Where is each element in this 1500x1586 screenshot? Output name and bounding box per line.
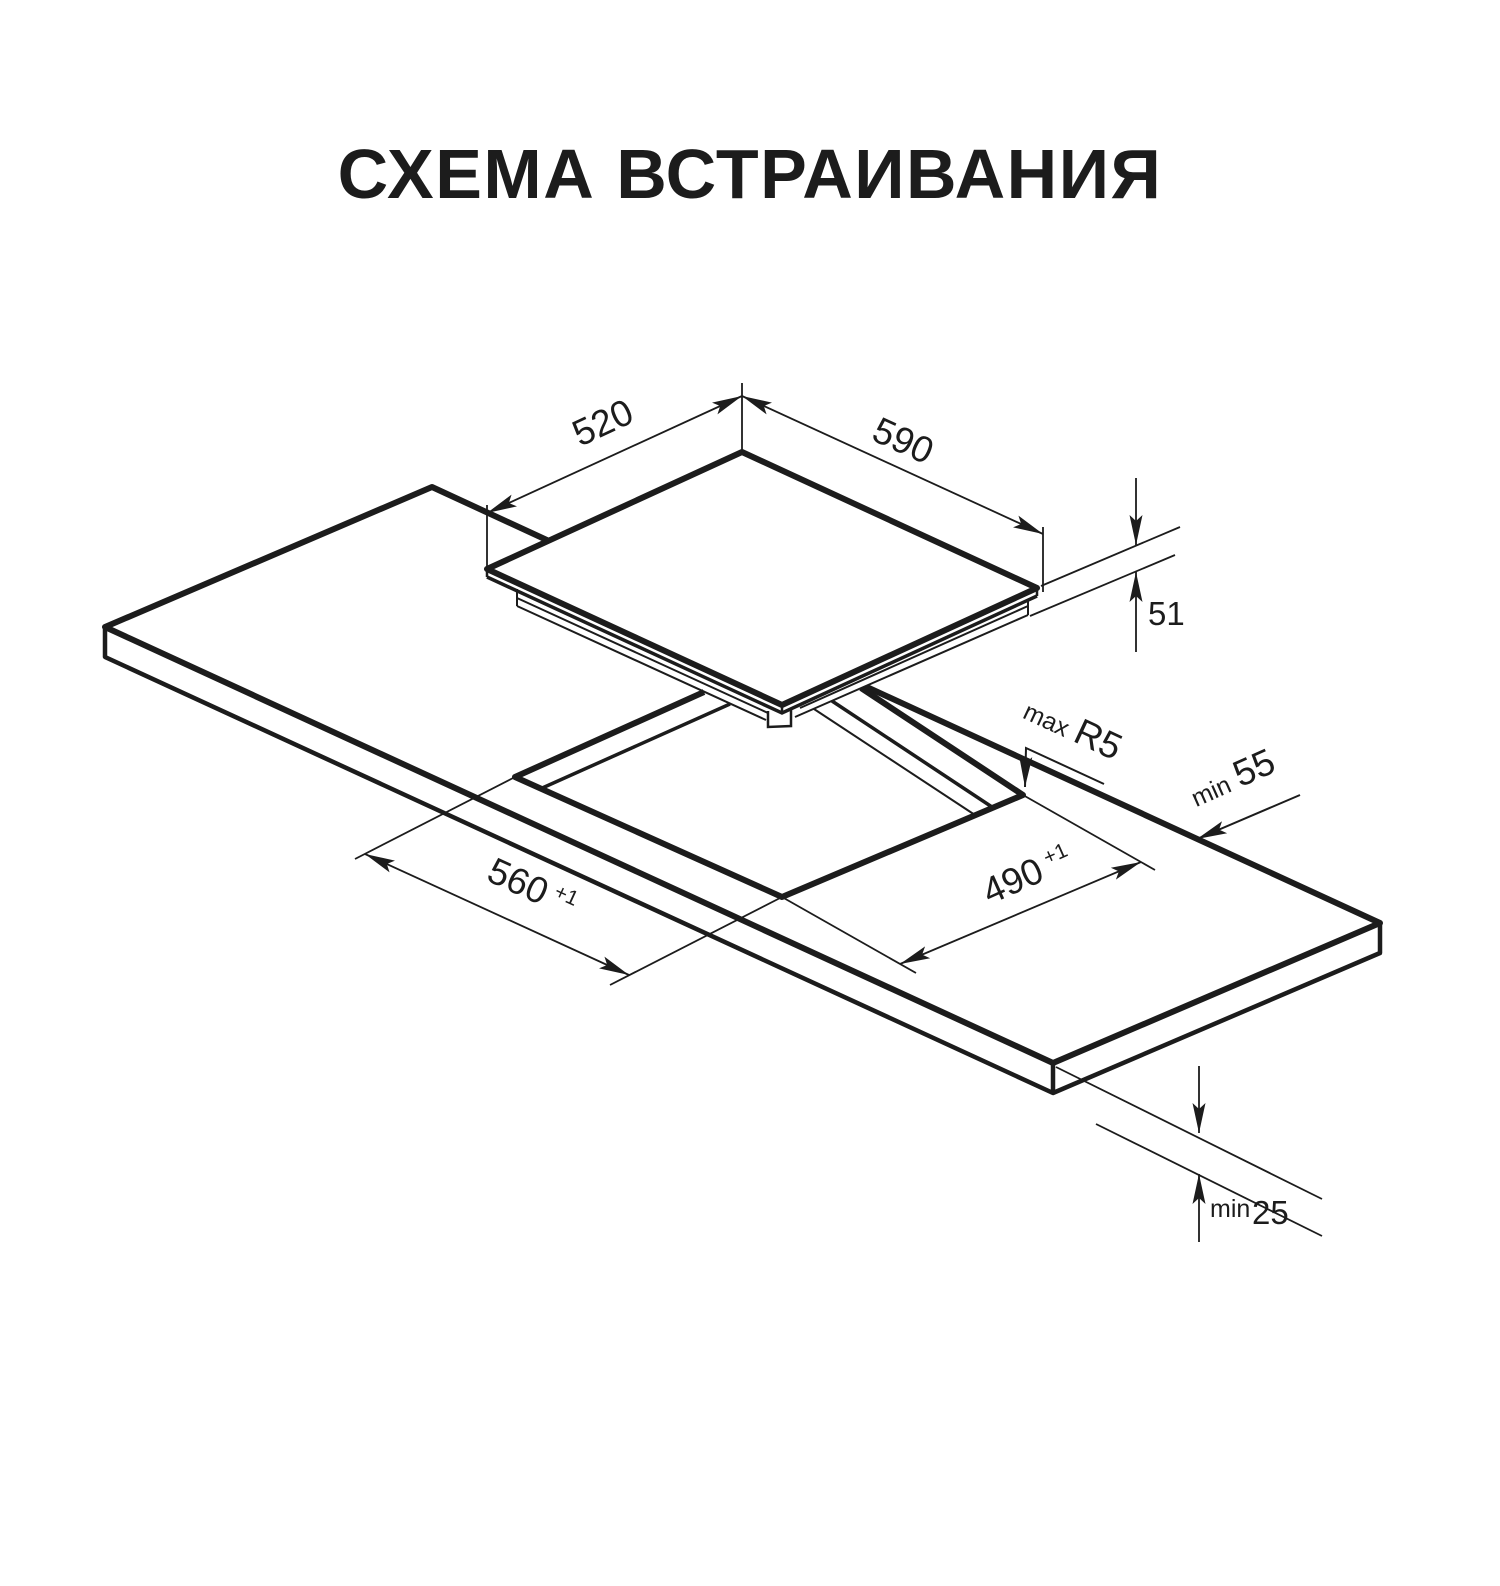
rear-clearance-label: min55	[1183, 741, 1281, 815]
bottom-clearance-ref-upper	[1056, 1067, 1322, 1199]
page-title: СХЕМА ВСТРАИВАНИЯ	[338, 135, 1163, 213]
cutout-inner-edge-left	[540, 704, 730, 789]
dim-cutout-560: 560+1	[355, 777, 782, 985]
cutout-inner-edge-right	[832, 701, 992, 807]
dim-560-extension-left	[355, 777, 515, 859]
dim-490-label: 490+1	[976, 837, 1077, 912]
dim-490-extension-left	[782, 897, 916, 973]
dim-51-label: 51	[1148, 595, 1185, 632]
embedding-scheme-drawing: СХЕМА ВСТРАИВАНИЯ 560+1 490+1 maxR5	[0, 0, 1500, 1586]
dim-51-extension-top	[1041, 527, 1180, 586]
dim-590-label: 590	[867, 409, 940, 472]
installation-diagram-page: СХЕМА ВСТРАИВАНИЯ 560+1 490+1 maxR5	[0, 0, 1500, 1586]
dim-corner-radius: maxR5	[1018, 687, 1128, 787]
dim-cutout-490: 490+1	[782, 795, 1155, 973]
bottom-clearance-prefix: min	[1210, 1195, 1250, 1223]
dim-560-extension-right	[610, 897, 782, 985]
dim-490-extension-right	[1023, 795, 1155, 870]
dim-bottom-clearance: min 25	[1056, 1066, 1322, 1242]
dim-520-label: 520	[566, 391, 639, 454]
dim-rear-clearance: min55	[1183, 741, 1300, 839]
bottom-clearance-value: 25	[1252, 1194, 1289, 1231]
radius-label: maxR5	[1018, 687, 1128, 767]
dim-hob-height-51: 51	[1030, 478, 1185, 652]
